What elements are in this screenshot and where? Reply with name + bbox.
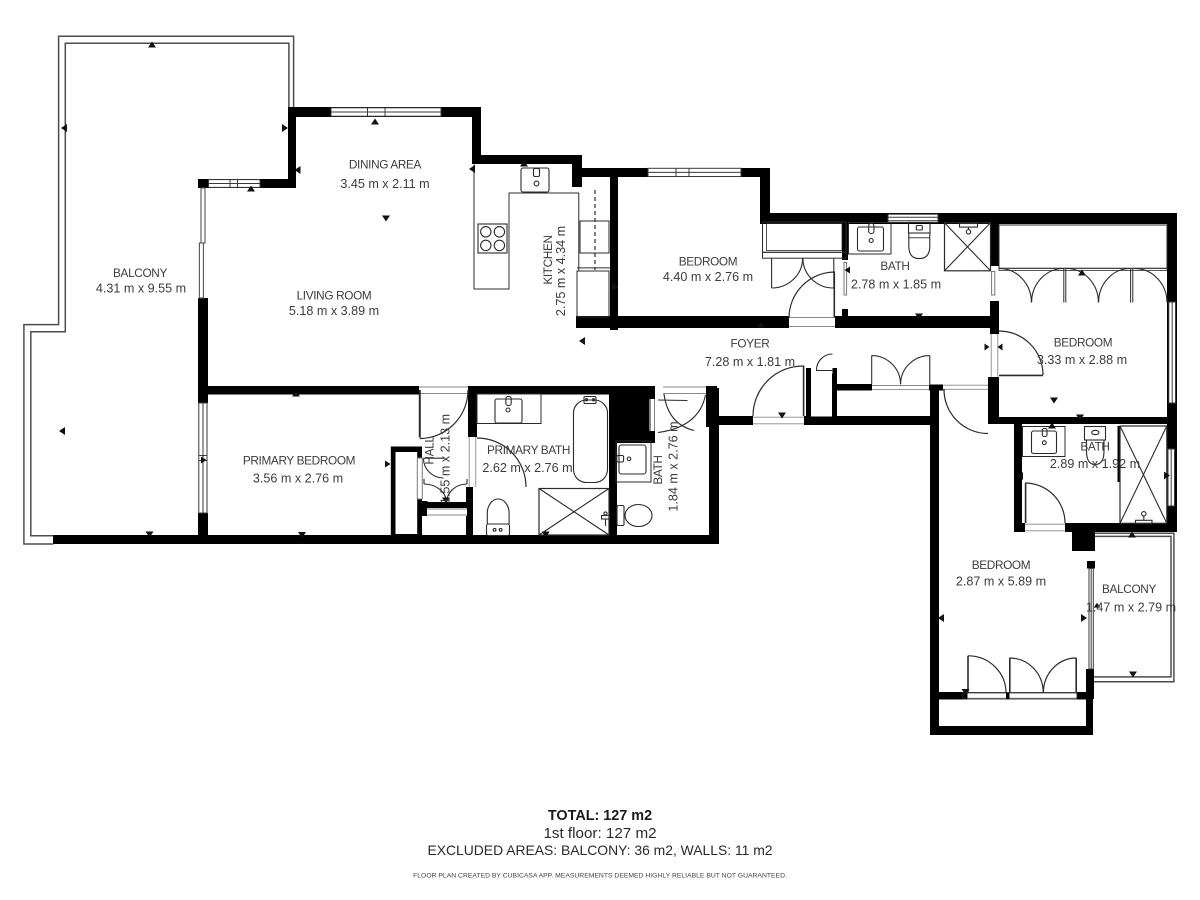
svg-text:DINING AREA: DINING AREA [349, 158, 422, 172]
svg-text:TOTAL: 127 m2: TOTAL: 127 m2 [548, 808, 652, 824]
svg-text:KITCHEN: KITCHEN [541, 235, 555, 284]
svg-text:3.45 m x 2.11 m: 3.45 m x 2.11 m [340, 177, 429, 191]
svg-text:FLOOR PLAN CREATED BY CUBICASA: FLOOR PLAN CREATED BY CUBICASA APP. MEAS… [413, 873, 787, 880]
svg-text:FOYER: FOYER [731, 337, 770, 351]
svg-text:1.55 m x 2.13 m: 1.55 m x 2.13 m [439, 414, 453, 504]
svg-text:1.84 m x 2.76 m: 1.84 m x 2.76 m [667, 421, 681, 511]
svg-text:3.56 m x 2.76 m: 3.56 m x 2.76 m [253, 472, 343, 486]
svg-text:2.87 m x 5.89 m: 2.87 m x 5.89 m [956, 575, 1046, 589]
svg-text:1.47 m x 2.79 m: 1.47 m x 2.79 m [1086, 601, 1176, 615]
svg-text:4.40 m x 2.76 m: 4.40 m x 2.76 m [663, 270, 753, 284]
svg-text:2.62 m x 2.76 m: 2.62 m x 2.76 m [482, 461, 572, 475]
svg-text:BALCONY: BALCONY [1102, 582, 1156, 596]
svg-text:BEDROOM: BEDROOM [1054, 336, 1113, 350]
svg-text:BEDROOM: BEDROOM [679, 255, 738, 269]
svg-text:HALL: HALL [423, 436, 437, 465]
svg-text:LIVING ROOM: LIVING ROOM [297, 289, 372, 303]
svg-text:BALCONY: BALCONY [113, 266, 167, 280]
svg-text:2.78 m x 1.85 m: 2.78 m x 1.85 m [851, 278, 941, 292]
svg-text:BEDROOM: BEDROOM [972, 558, 1031, 572]
svg-text:2.75 m x 4.34 m: 2.75 m x 4.34 m [554, 226, 568, 316]
svg-text:3.33 m x 2.88 m: 3.33 m x 2.88 m [1037, 353, 1127, 367]
svg-text:BATH: BATH [1080, 440, 1109, 454]
svg-text:1st floor: 127 m2: 1st floor: 127 m2 [543, 825, 656, 842]
svg-text:4.31 m x 9.55 m: 4.31 m x 9.55 m [96, 282, 186, 296]
svg-text:7.28 m x 1.81 m: 7.28 m x 1.81 m [705, 355, 795, 369]
svg-text:PRIMARY BATH: PRIMARY BATH [487, 443, 570, 457]
svg-text:5.18 m x 3.89 m: 5.18 m x 3.89 m [289, 304, 379, 318]
svg-text:2.89 m x 1.92 m: 2.89 m x 1.92 m [1050, 457, 1140, 471]
svg-text:BATH: BATH [651, 455, 665, 484]
svg-text:PRIMARY BEDROOM: PRIMARY BEDROOM [243, 454, 355, 468]
svg-text:EXCLUDED AREAS: BALCONY: 36 m2: EXCLUDED AREAS: BALCONY: 36 m2, WALLS: 1… [427, 842, 772, 858]
svg-text:BATH: BATH [880, 259, 909, 273]
